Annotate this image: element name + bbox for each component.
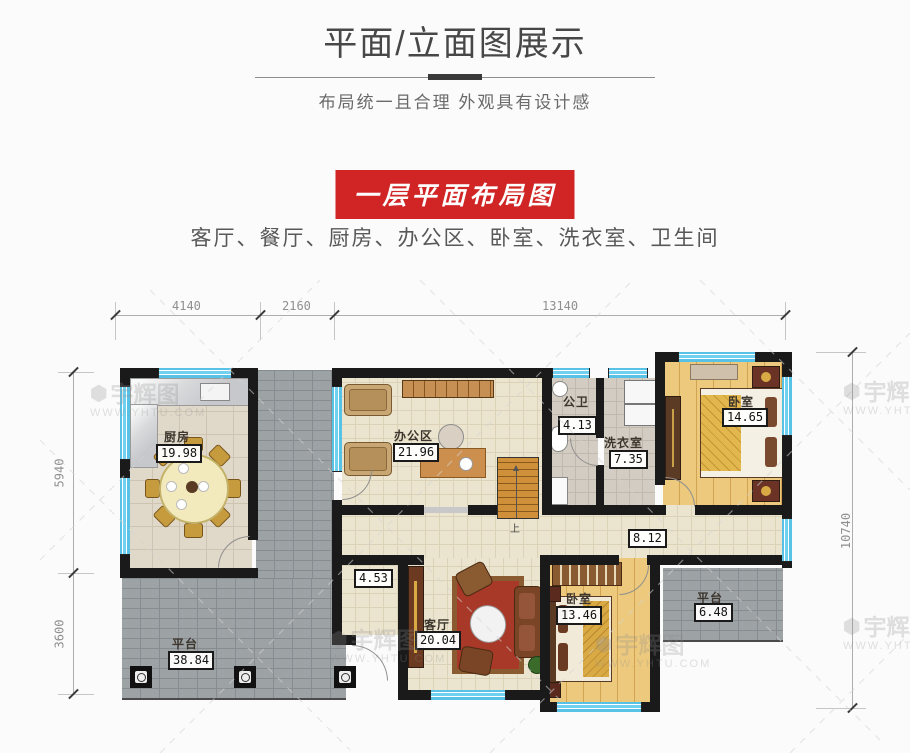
page: { "header": { "title": "平面/立面图展示", "subt… xyxy=(0,0,910,753)
bath-area: 4.13 xyxy=(558,416,597,435)
bedroom2-label: 卧室 xyxy=(566,590,592,607)
door-threshold xyxy=(424,507,468,513)
window xyxy=(556,702,642,712)
dim-right-1: 10740 xyxy=(839,513,853,549)
terrace-right-area: 6.48 xyxy=(694,603,733,622)
hallway-area: 8.12 xyxy=(628,529,667,548)
wall xyxy=(332,368,560,378)
dim-ext xyxy=(260,302,261,340)
dim-ext xyxy=(58,694,94,695)
tv-cabinet xyxy=(408,566,424,668)
bedroom1-dresser xyxy=(690,364,738,380)
outdoor-path xyxy=(256,370,334,580)
window xyxy=(332,386,342,472)
stairs-up-label: 上 xyxy=(510,520,520,535)
window xyxy=(782,376,792,436)
bedroom2-wardrobe xyxy=(552,562,622,586)
washer-1 xyxy=(624,380,656,404)
living-area: 20.04 xyxy=(415,631,461,650)
office-chair xyxy=(438,424,464,450)
dim-top-2: 2160 xyxy=(282,299,311,313)
wall xyxy=(647,555,792,565)
laundry-area: 7.35 xyxy=(609,450,648,469)
dim-ext xyxy=(334,302,335,340)
laundry-label: 洗衣室 xyxy=(604,434,643,451)
bath-vanity xyxy=(551,477,568,505)
window xyxy=(430,690,506,700)
window xyxy=(158,368,232,378)
stairs-up-line xyxy=(516,470,517,518)
wall xyxy=(332,635,356,645)
kitchen-counter-top xyxy=(130,378,250,406)
dim-top-1: 4140 xyxy=(172,299,201,313)
washer-2 xyxy=(624,404,656,426)
dim-left-1: 5940 xyxy=(52,459,66,488)
terrace-left-area: 38.84 xyxy=(168,651,214,670)
kitchen-label: 厨房 xyxy=(164,428,190,445)
window xyxy=(678,352,756,362)
window xyxy=(608,368,648,378)
bedroom1-wardrobe xyxy=(665,396,681,480)
window xyxy=(120,477,130,555)
dim-ext xyxy=(58,573,94,574)
window xyxy=(552,368,590,378)
dim-ext xyxy=(58,372,94,373)
wall xyxy=(695,505,792,515)
dim-ext xyxy=(115,302,116,340)
dim-ext xyxy=(816,708,866,709)
door-arc-entry xyxy=(352,645,388,681)
wall xyxy=(398,565,408,690)
wall xyxy=(332,500,342,645)
living-sofa xyxy=(514,586,542,658)
stairs-up-arrow xyxy=(513,465,519,471)
wall xyxy=(545,555,619,565)
wall xyxy=(542,368,552,515)
wall xyxy=(248,368,258,540)
wall xyxy=(540,555,550,712)
bedroom2-area: 13.46 xyxy=(556,606,602,625)
wall xyxy=(332,505,424,515)
column-base xyxy=(234,666,256,688)
wall xyxy=(655,352,665,485)
bath-label: 公卫 xyxy=(563,393,589,410)
office-label: 办公区 xyxy=(394,427,433,444)
dim-top-3: 13140 xyxy=(542,299,578,313)
bedroom1-nightstand-bottom xyxy=(752,480,780,502)
floor-plan: 上 xyxy=(0,0,910,753)
wall xyxy=(120,568,258,578)
entry-area: 4.53 xyxy=(354,569,393,588)
dim-line-top xyxy=(115,315,785,316)
wall xyxy=(332,555,424,565)
wall xyxy=(468,505,497,515)
bedroom1-area: 14.65 xyxy=(722,408,768,427)
wall xyxy=(596,378,604,438)
wall xyxy=(542,505,666,515)
window xyxy=(120,386,130,460)
bookshelf xyxy=(402,380,494,398)
wall xyxy=(650,555,660,712)
wall xyxy=(655,505,665,515)
living-armchair-bottom xyxy=(458,645,494,676)
column-base xyxy=(130,666,152,688)
window xyxy=(782,518,792,562)
office-area: 21.96 xyxy=(393,443,439,462)
kitchen-area: 19.98 xyxy=(156,444,202,463)
dim-left-2: 3600 xyxy=(52,620,66,649)
kitchen-sink xyxy=(200,383,230,401)
dim-ext xyxy=(816,352,866,353)
terrace-left-label: 平台 xyxy=(172,635,198,652)
office-sofa-1 xyxy=(344,384,392,416)
bedroom1-nightstand-top xyxy=(752,366,780,388)
dim-line-left xyxy=(73,372,74,694)
dim-ext xyxy=(785,302,786,340)
